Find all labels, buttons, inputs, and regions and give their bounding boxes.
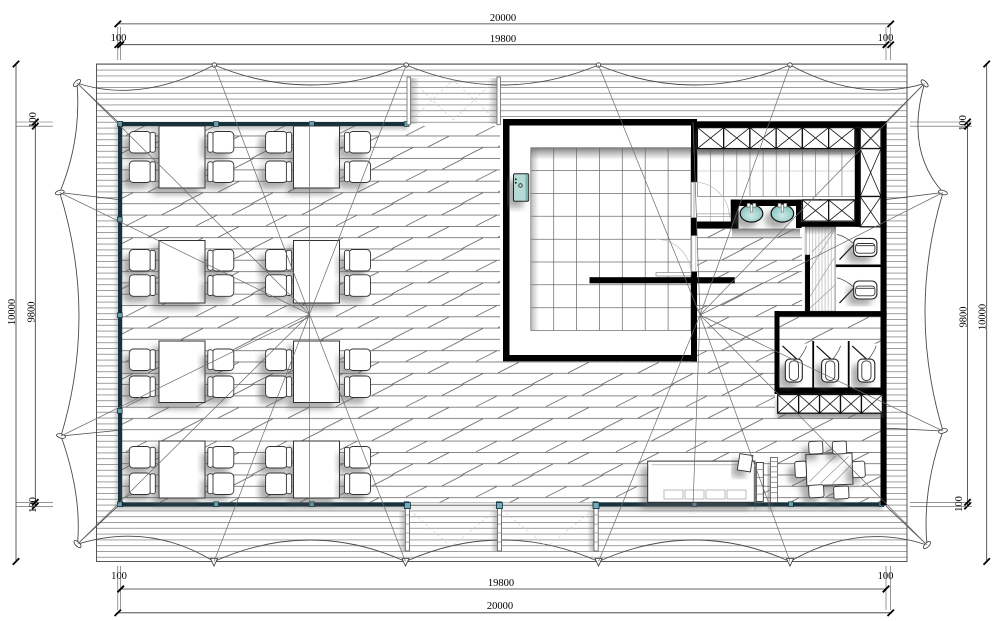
svg-text:100: 100 bbox=[28, 112, 39, 128]
svg-text:9800: 9800 bbox=[958, 307, 969, 328]
svg-text:10000: 10000 bbox=[7, 299, 18, 325]
svg-text:100: 100 bbox=[954, 496, 965, 512]
svg-text:19800: 19800 bbox=[488, 578, 514, 589]
svg-text:20000: 20000 bbox=[487, 601, 513, 612]
svg-text:100: 100 bbox=[878, 571, 894, 582]
svg-text:100: 100 bbox=[878, 33, 894, 44]
svg-text:19800: 19800 bbox=[490, 34, 516, 45]
svg-text:9800: 9800 bbox=[27, 302, 38, 323]
svg-text:100: 100 bbox=[111, 571, 127, 582]
svg-text:20000: 20000 bbox=[490, 13, 516, 24]
svg-text:10000: 10000 bbox=[978, 304, 989, 330]
svg-text:100: 100 bbox=[958, 115, 969, 131]
